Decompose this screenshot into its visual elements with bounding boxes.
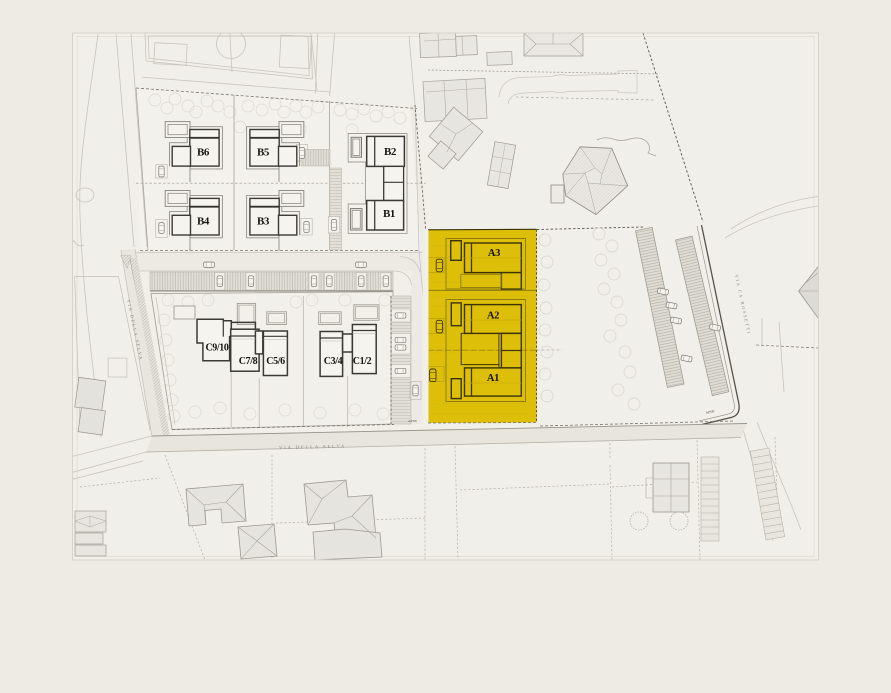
svg-text:A3: A3 [488, 248, 500, 259]
svg-text:C9/10: C9/10 [205, 343, 228, 354]
svg-text:B5: B5 [257, 147, 270, 159]
svg-text:B4: B4 [197, 216, 210, 228]
svg-text:B1: B1 [383, 208, 395, 220]
svg-text:C1/2: C1/2 [353, 356, 372, 367]
svg-text:C3/4: C3/4 [324, 356, 343, 367]
svg-text:APSB: APSB [408, 419, 417, 423]
svg-text:A2: A2 [487, 311, 499, 322]
svg-text:C7/8: C7/8 [239, 356, 258, 367]
svg-text:B3: B3 [257, 216, 270, 228]
svg-text:B6: B6 [197, 147, 210, 159]
svg-text:C5/6: C5/6 [266, 356, 285, 367]
svg-text:A1: A1 [487, 373, 499, 384]
svg-text:B2: B2 [384, 146, 397, 158]
